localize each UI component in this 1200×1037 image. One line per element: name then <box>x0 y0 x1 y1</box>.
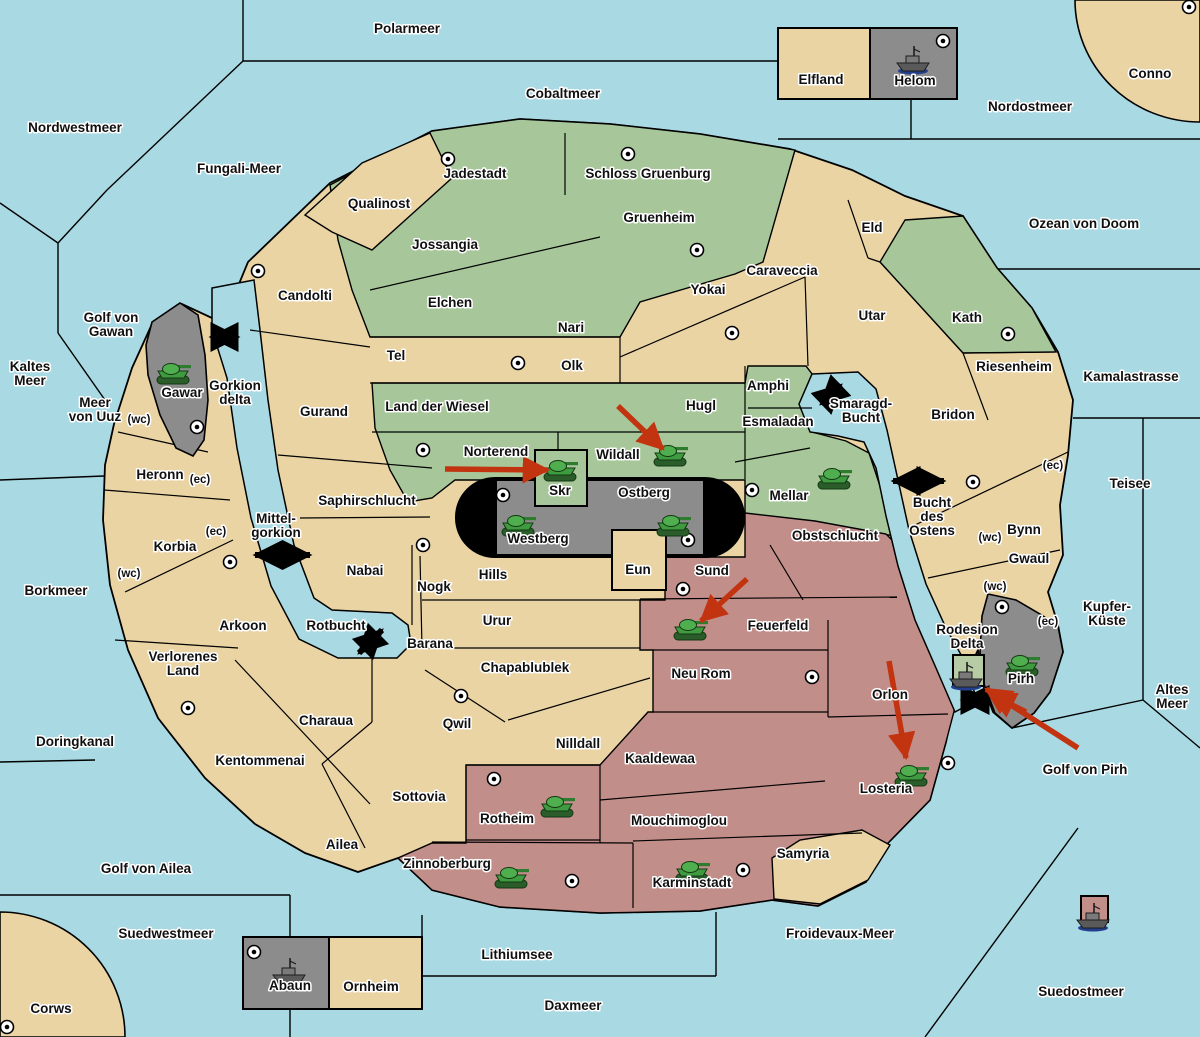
land-label-barana: Barana <box>407 636 453 651</box>
supply-center-jadestadt <box>442 153 455 166</box>
land-label-orlon: Orlon <box>872 687 908 702</box>
sea-label-altes-meer: AltesMeer <box>1155 682 1188 711</box>
supply-center-rotheim <box>488 773 501 786</box>
supply-center-bynn <box>967 476 980 489</box>
game-map: PolarmeerCobaltmeerNordostmeerNordwestme… <box>0 0 1200 1037</box>
land-label-riesenheim: Riesenheim <box>976 359 1052 374</box>
land-label-caraveccia: Caraveccia <box>746 263 818 278</box>
land-label-rotheim: Rotheim <box>480 811 534 826</box>
land-label-losteria: Losteria <box>860 781 913 796</box>
land-label-karminstadt: Karminstadt <box>653 875 732 890</box>
tank-turret <box>663 516 680 527</box>
supply-dot-core <box>228 560 233 565</box>
tank-turret <box>163 364 180 375</box>
sea-label-polarmeer: Polarmeer <box>374 21 441 36</box>
supply-center-westberg <box>497 489 510 502</box>
land-label-gurand: Gurand <box>300 404 348 419</box>
land-label-hugl: Hugl <box>686 398 716 413</box>
supply-dot-core <box>256 269 261 274</box>
sea-label-teisee: Teisee <box>1109 476 1151 491</box>
supply-center-abaun <box>248 946 261 959</box>
land-label-feuerfeld: Feuerfeld <box>748 618 809 633</box>
supply-dot-core <box>501 493 506 498</box>
coast-badge: (ec) <box>1038 616 1059 628</box>
supply-dot-core <box>941 39 946 44</box>
land-label-norterend: Norterend <box>464 444 529 459</box>
land-label-obstschlucht: Obstschlucht <box>792 528 879 543</box>
supply-center-helom <box>937 35 950 48</box>
supply-center-zinnoberburg <box>566 875 579 888</box>
supply-center-korbia <box>224 556 237 569</box>
ship-hull <box>897 63 929 71</box>
land-label-saphirschlucht: Saphirschlucht <box>318 493 416 508</box>
supply-dot-core <box>750 488 755 493</box>
tank-turret <box>680 620 697 631</box>
land-label-kath: Kath <box>952 310 982 325</box>
supply-center-neu-rom <box>806 671 819 684</box>
supply-dot-core <box>421 543 426 548</box>
supply-center-mellar <box>746 484 759 497</box>
land-label-korbia: Korbia <box>154 539 197 554</box>
supply-dot-core <box>810 675 815 680</box>
supply-center-corws <box>1 1021 14 1034</box>
supply-dot-core <box>516 361 521 366</box>
supply-center-tel <box>512 357 525 370</box>
supply-dot-core <box>1000 605 1005 610</box>
supply-center-gawar <box>191 421 204 434</box>
sea-label-doringkanal: Doringkanal <box>36 734 114 749</box>
sea-label-rotbucht: Rotbucht <box>306 618 366 633</box>
tank-turret <box>682 862 699 873</box>
supply-center-schloss-gruenburg <box>622 148 635 161</box>
land-label-jadestadt: Jadestadt <box>443 166 507 181</box>
land-label-tel: Tel <box>387 348 406 363</box>
land-label-qwil: Qwil <box>443 716 472 731</box>
supply-center-conno <box>1183 1 1196 14</box>
sea-label-lithiumsee: Lithiumsee <box>481 947 553 962</box>
supply-dot-core <box>570 879 575 884</box>
supply-dot-core <box>446 157 451 162</box>
land-label-wildall: Wildall <box>596 447 639 462</box>
supply-dot-core <box>681 587 686 592</box>
supply-center-hills <box>417 539 430 552</box>
coast-badge: (wc) <box>128 414 151 426</box>
land-label-sottovia: Sottovia <box>392 789 446 804</box>
sea-label-golf-von-pirh: Golf von Pirh <box>1043 762 1128 777</box>
ship-superstructure <box>906 56 919 63</box>
sea-label-kamalastrasse: Kamalastrasse <box>1083 369 1179 384</box>
land-label-gawar: Gawar <box>161 385 203 400</box>
supply-center-candolti <box>252 265 265 278</box>
land-label-samyria: Samyria <box>777 846 830 861</box>
sea-label-daxmeer: Daxmeer <box>544 998 602 1013</box>
tank-turret <box>547 797 564 808</box>
ship-superstructure <box>282 968 295 975</box>
land-label-schloss-gruenburg: Schloss Gruenburg <box>585 166 710 181</box>
supply-center-losteria <box>942 757 955 770</box>
land-label-kaaldewaa: Kaaldewaa <box>625 751 695 766</box>
land-label-conno: Conno <box>1129 66 1172 81</box>
sea-label-mittel-gorkion: Mittel-gorkion <box>251 511 301 540</box>
land-label-mouchimoglou: Mouchimoglou <box>631 813 727 828</box>
supply-dot-core <box>971 480 976 485</box>
land-label-nilldall: Nilldall <box>556 736 600 751</box>
land-label-bridon: Bridon <box>931 407 975 422</box>
tank-turret <box>508 516 525 527</box>
land-label-eun: Eun <box>625 562 651 577</box>
ornheim-box[interactable] <box>329 937 422 1009</box>
coast-badge: (ec) <box>190 474 211 486</box>
supply-dot-core <box>421 448 426 453</box>
tank-turret <box>550 461 567 472</box>
sea-label-golf-von-gawan: Golf vonGawan <box>84 310 139 339</box>
land-label-skr: Skr <box>549 483 572 498</box>
land-label-yokai: Yokai <box>690 282 725 297</box>
coast-badge: (wc) <box>118 568 141 580</box>
supply-center-sund <box>677 583 690 596</box>
sea-label-suedostmeer: Suedostmeer <box>1038 984 1124 999</box>
land-label-abaun: Abaun <box>269 978 311 993</box>
land-label-candolti: Candolti <box>278 288 332 303</box>
ship-hull <box>1077 920 1109 928</box>
ship-superstructure <box>959 672 972 679</box>
coast-badge: (ec) <box>1043 460 1064 472</box>
supply-dot-core <box>626 152 631 157</box>
supply-dot-core <box>492 777 497 782</box>
land-label-nogk: Nogk <box>417 579 451 594</box>
land-label-charaua: Charaua <box>299 713 354 728</box>
tank-turret <box>501 868 518 879</box>
tank-turret <box>824 469 841 480</box>
elfland-box[interactable] <box>778 28 870 99</box>
supply-center-yokai <box>726 327 739 340</box>
land-label-arkoon: Arkoon <box>219 618 266 633</box>
ship-superstructure <box>1086 913 1099 920</box>
supply-dot-core <box>730 331 735 336</box>
land-label-elchen: Elchen <box>428 295 472 310</box>
tank-turret <box>901 766 918 777</box>
supply-dot-core <box>1006 332 1011 337</box>
supply-dot-core <box>459 694 464 699</box>
land-label-qualinost: Qualinost <box>348 196 411 211</box>
land-label-gruenheim: Gruenheim <box>623 210 694 225</box>
ship-hull <box>950 679 982 687</box>
coast-badge: (ec) <box>206 526 227 538</box>
land-label-ostberg: Ostberg <box>618 485 670 500</box>
region-eun[interactable] <box>612 530 666 590</box>
sea-label-fungali-meer: Fungali-Meer <box>197 161 282 176</box>
supply-center-karminstadt <box>737 864 750 877</box>
land-label-sund: Sund <box>695 563 729 578</box>
supply-dot-core <box>5 1025 10 1030</box>
land-label-neu-rom: Neu Rom <box>671 666 730 681</box>
land-label-olk: Olk <box>561 358 583 373</box>
supply-dot-core <box>252 950 257 955</box>
land-label-urur: Urur <box>483 613 512 628</box>
supply-dot-core <box>195 425 200 430</box>
land-label-utar: Utar <box>858 308 886 323</box>
land-label-helom: Helom <box>894 73 935 88</box>
land-label-elfland: Elfland <box>798 72 843 87</box>
tank-turret <box>1012 656 1029 667</box>
land-label-kentommenai: Kentommenai <box>215 753 304 768</box>
supply-center-kentommenai <box>182 702 195 715</box>
sea-label-kaltes-meer: KaltesMeer <box>10 359 51 388</box>
supply-dot-core <box>946 761 951 766</box>
supply-dot-core <box>186 706 191 711</box>
map-canvas: PolarmeerCobaltmeerNordostmeerNordwestme… <box>0 0 1200 1037</box>
land-label-ailea: Ailea <box>326 837 359 852</box>
land-label-nabai: Nabai <box>347 563 384 578</box>
sea-label-nordwestmeer: Nordwestmeer <box>28 120 123 135</box>
sea-label-ozean-von-doom: Ozean von Doom <box>1029 216 1139 231</box>
land-label-gwaul: Gwaul <box>1009 551 1050 566</box>
land-label-jossangia: Jossangia <box>412 237 479 252</box>
land-label-mellar: Mellar <box>769 488 809 503</box>
sea-label-borkmeer: Borkmeer <box>24 583 88 598</box>
coast-badge: (wc) <box>979 532 1002 544</box>
land-label-chapablublek: Chapablublek <box>481 660 570 675</box>
land-label-amphi: Amphi <box>747 378 789 393</box>
land-label-bynn: Bynn <box>1007 522 1041 537</box>
supply-center-pirh <box>996 601 1009 614</box>
land-label-esmaladan: Esmaladan <box>742 414 813 429</box>
supply-center-norterend <box>417 444 430 457</box>
land-label-pirh: Pirh <box>1008 671 1034 686</box>
land-label-corws: Corws <box>30 1001 71 1016</box>
sea-label-nordostmeer: Nordostmeer <box>988 99 1073 114</box>
land-label-ornheim: Ornheim <box>343 979 399 994</box>
sea-label-froidevaux-meer: Froidevaux-Meer <box>786 926 895 941</box>
move-arrow <box>445 469 548 470</box>
land-label-zinnoberburg: Zinnoberburg <box>403 856 491 871</box>
land-label-westberg: Westberg <box>507 531 568 546</box>
supply-dot-core <box>1187 5 1192 10</box>
supply-dot-core <box>741 868 746 873</box>
sea-label-suedwestmeer: Suedwestmeer <box>118 926 214 941</box>
sea-label-golf-von-ailea: Golf von Ailea <box>101 861 192 876</box>
sea-label-kupfer-kueste: Kupfer-Küste <box>1083 599 1131 628</box>
land-label-land-der-wiesel: Land der Wiesel <box>385 399 488 414</box>
supply-center-gruenheim <box>691 244 704 257</box>
sea-label-cobaltmeer: Cobaltmeer <box>526 86 601 101</box>
land-label-hills: Hills <box>479 567 508 582</box>
land-label-eld: Eld <box>861 220 882 235</box>
supply-dot-core <box>686 538 691 543</box>
supply-dot-core <box>695 248 700 253</box>
land-label-nari: Nari <box>558 320 584 335</box>
coast-badge: (wc) <box>984 581 1007 593</box>
land-label-heronn: Heronn <box>136 467 183 482</box>
supply-center-qwil <box>455 690 468 703</box>
supply-center-kath <box>1002 328 1015 341</box>
